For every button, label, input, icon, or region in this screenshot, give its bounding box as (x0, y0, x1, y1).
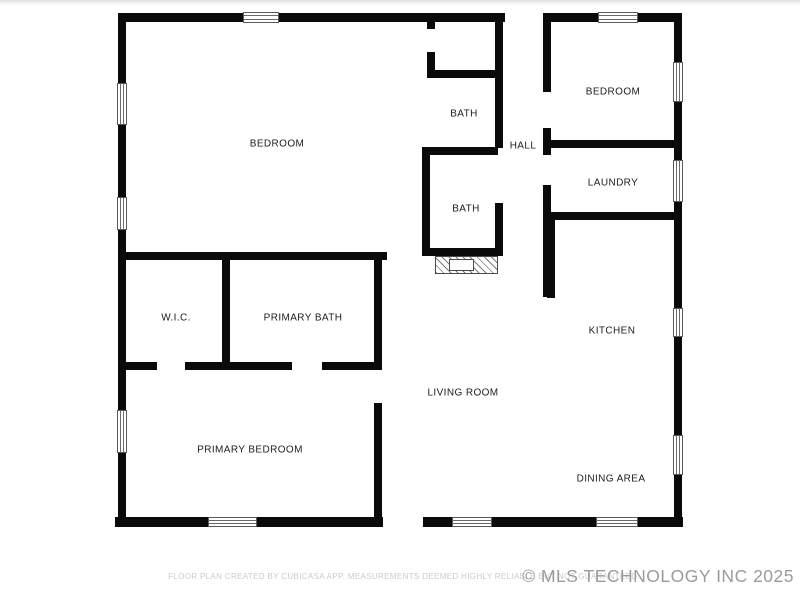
window-symbol (117, 83, 127, 125)
wall (322, 362, 382, 370)
top-gradient-band (0, 0, 800, 6)
wall (492, 517, 596, 527)
window-symbol (208, 517, 257, 527)
window-symbol (243, 12, 279, 23)
room-label-laundry: LAUNDRY (588, 178, 638, 189)
wall (115, 517, 208, 527)
wall (374, 403, 382, 527)
wall (427, 70, 498, 78)
room-label-dining-area: DINING AREA (577, 474, 646, 485)
window-symbol (598, 12, 638, 23)
window-symbol (596, 517, 638, 527)
wall (279, 13, 505, 22)
window-symbol (673, 160, 683, 202)
wall (674, 102, 682, 160)
room-label-bath-lower: BATH (452, 204, 480, 215)
wall (257, 517, 383, 527)
window-symbol (452, 517, 492, 527)
room-label-bedroom-right: BEDROOM (586, 87, 640, 98)
room-label-wic: W.I.C. (161, 313, 191, 324)
window-symbol (673, 62, 683, 102)
room-label-primary-bath: PRIMARY BATH (264, 313, 343, 324)
wall (422, 248, 498, 256)
wall (118, 13, 126, 83)
wall (551, 140, 674, 148)
wall (118, 252, 387, 260)
wall (374, 252, 382, 368)
window-symbol (673, 308, 683, 337)
window-symbol (117, 410, 127, 453)
room-label-bath-upper: BATH (450, 109, 478, 120)
wall (674, 13, 682, 62)
wall (548, 212, 674, 220)
wall (543, 13, 551, 92)
wall (185, 362, 292, 370)
fireplace (435, 256, 498, 274)
wall (118, 125, 126, 197)
floor-plan: BEDROOM BATH HALL BEDROOM LAUNDRY BATH W… (0, 0, 800, 600)
wall (423, 517, 452, 527)
watermark-text: © MLS TECHNOLOGY INC 2025 (522, 566, 794, 587)
room-label-kitchen: KITCHEN (589, 326, 636, 337)
wall (427, 22, 435, 29)
room-label-living-room: LIVING ROOM (427, 388, 498, 399)
wall (638, 517, 683, 527)
wall (222, 260, 230, 370)
fireplace-opening (449, 259, 474, 271)
window-symbol (673, 435, 683, 475)
wall (118, 453, 126, 527)
wall (674, 202, 682, 308)
wall (118, 13, 243, 22)
wall (495, 13, 503, 148)
window-symbol (117, 197, 127, 230)
wall (543, 128, 551, 155)
wall (422, 147, 430, 250)
wall (547, 220, 555, 298)
wall (674, 337, 682, 435)
room-label-bedroom-left: BEDROOM (250, 139, 304, 150)
wall (118, 362, 157, 370)
room-label-primary-bedroom: PRIMARY BEDROOM (197, 445, 303, 456)
wall (543, 13, 598, 22)
wall (422, 147, 498, 155)
room-label-hall: HALL (510, 141, 537, 152)
